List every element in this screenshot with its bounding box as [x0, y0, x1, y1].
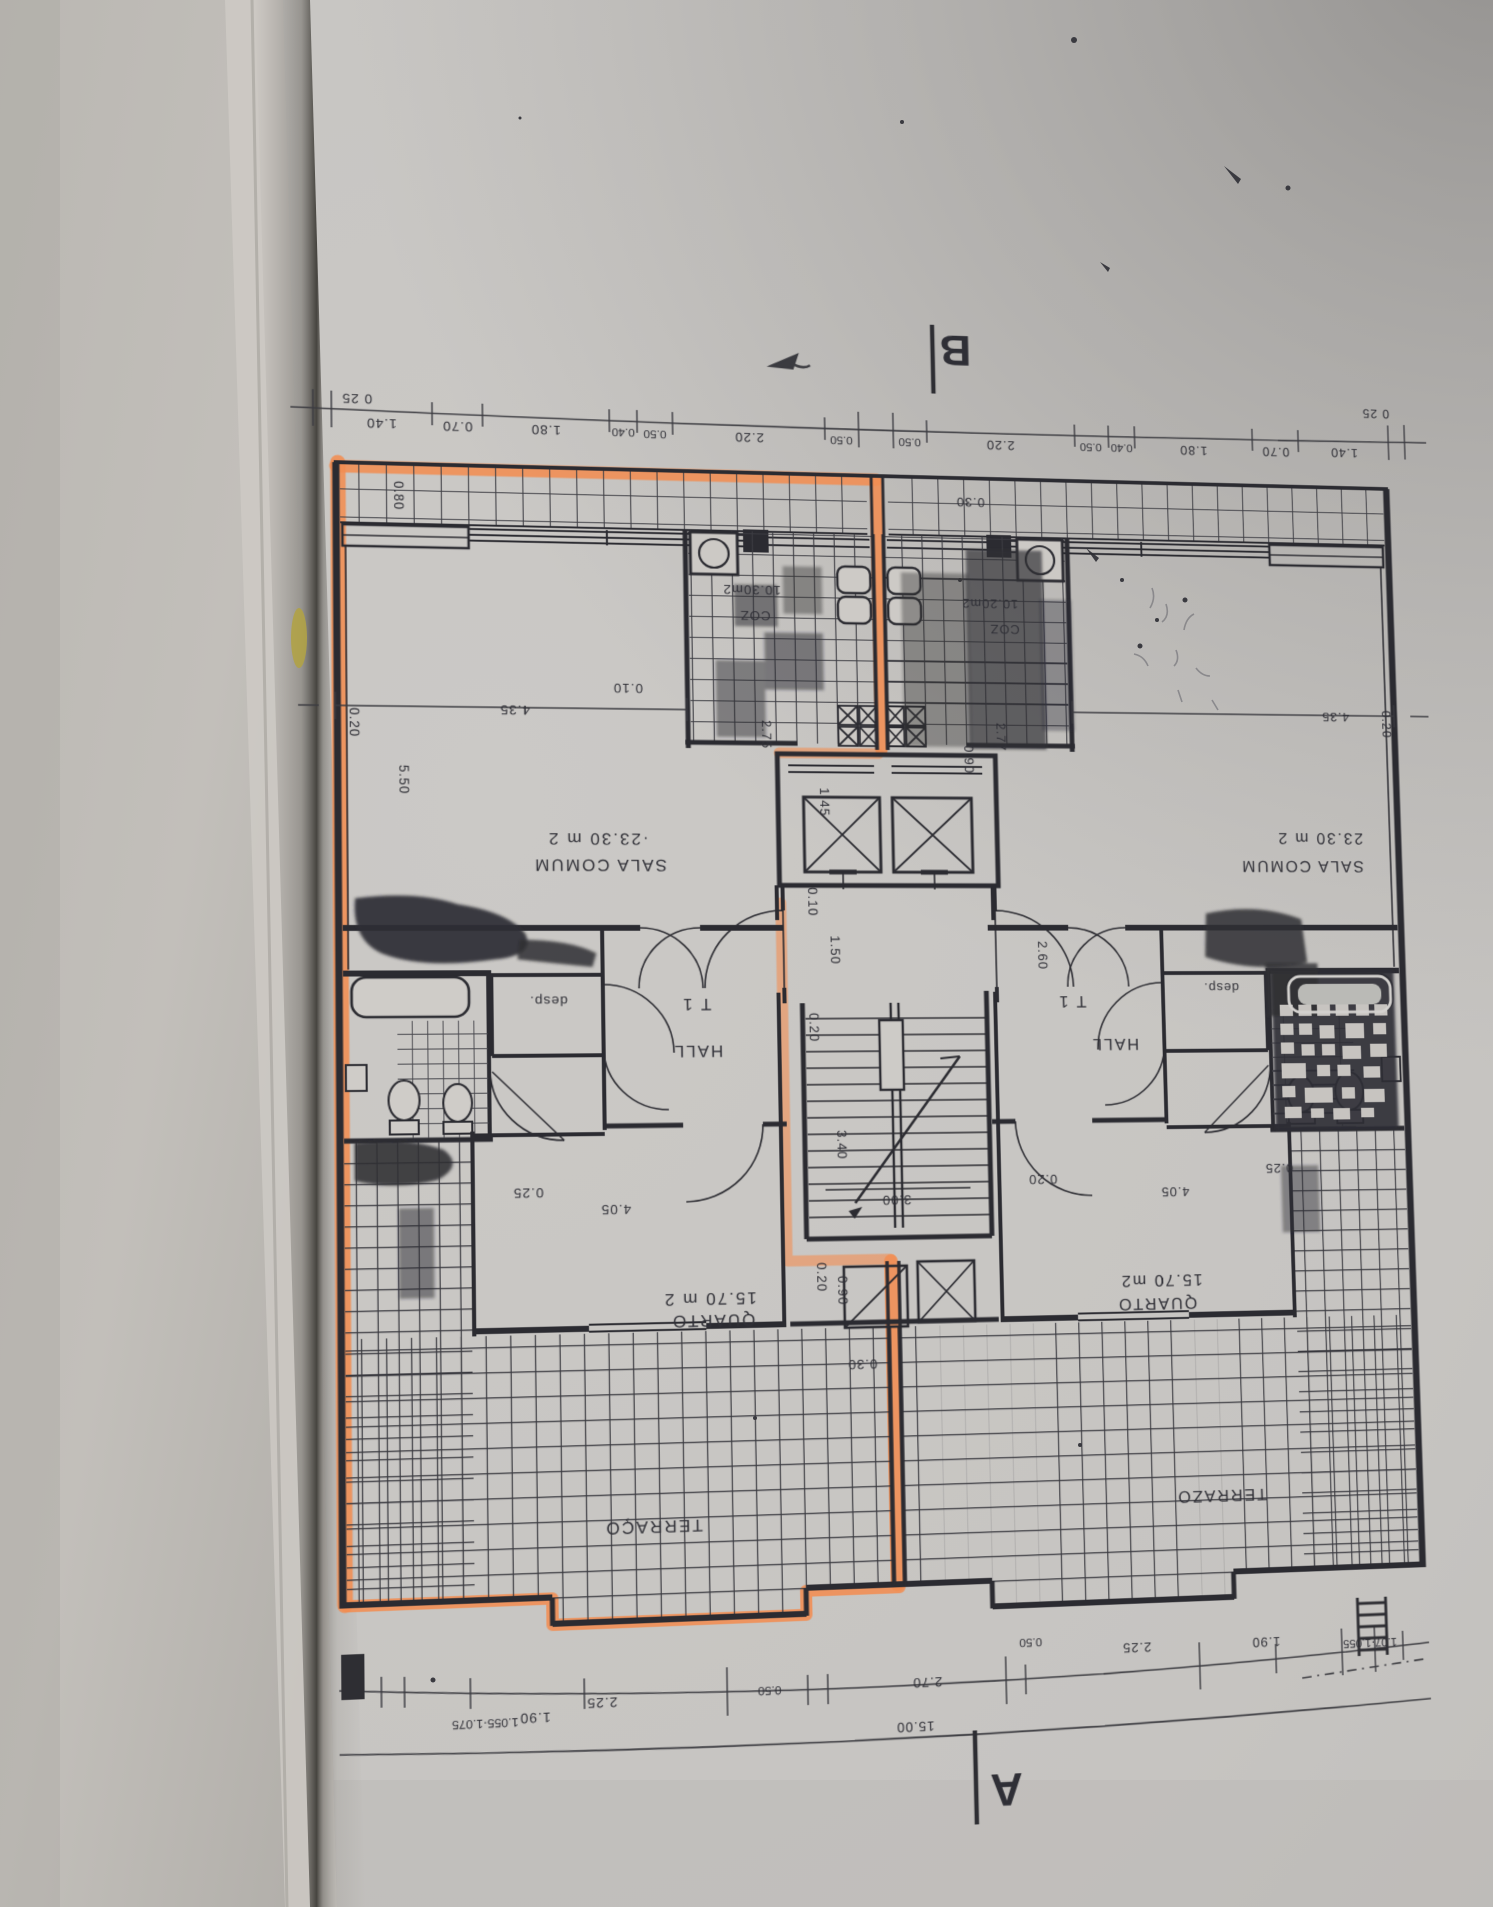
svg-text:1.80: 1.80 [1179, 443, 1207, 458]
svg-text:0.30: 0.30 [847, 1357, 877, 1373]
svg-text:0.20: 0.20 [1379, 711, 1394, 739]
svg-text:0.90: 0.90 [835, 1276, 850, 1306]
svg-text:0.80: 0.80 [391, 481, 406, 511]
svg-text:2.77: 2.77 [994, 723, 1009, 752]
svg-text:0.50: 0.50 [643, 427, 667, 441]
svg-text:3.00: 3.00 [882, 1192, 912, 1207]
svg-text:desp.: desp. [529, 994, 568, 1009]
svg-text:B: B [939, 326, 972, 375]
svg-text:2.75: 2.75 [759, 720, 774, 749]
svg-text:4.35: 4.35 [1321, 710, 1349, 724]
svg-text:15.70 m 2: 15.70 m 2 [663, 1288, 757, 1309]
svg-text:23.30 m 2: 23.30 m 2 [1276, 829, 1363, 847]
svg-text:COZ: COZ [989, 622, 1019, 637]
svg-text:0.70: 0.70 [442, 419, 473, 434]
svg-text:0.20: 0.20 [806, 1013, 821, 1042]
svg-text:3.40: 3.40 [834, 1130, 849, 1160]
svg-text:·23.30 m 2: ·23.30 m 2 [547, 829, 649, 848]
svg-text:T 1: T 1 [681, 995, 711, 1014]
svg-text:10.20m2: 10.20m2 [961, 596, 1018, 611]
svg-text:HALL: HALL [673, 1042, 724, 1061]
svg-text:COZ: COZ [740, 608, 771, 623]
svg-text:0.10: 0.10 [805, 887, 820, 916]
svg-text:0.10: 0.10 [613, 681, 643, 696]
svg-text:1.90: 1.90 [1251, 1634, 1280, 1650]
svg-text:0.50: 0.50 [757, 1683, 781, 1698]
svg-text:0.30: 0.30 [956, 495, 985, 510]
svg-text:4.05: 4.05 [600, 1202, 631, 1217]
svg-text:TERRAZO: TERRAZO [1176, 1485, 1267, 1506]
svg-text:TERRAÇO: TERRAÇO [604, 1515, 703, 1537]
svg-text:5.50: 5.50 [396, 765, 412, 795]
svg-text:0 25: 0 25 [341, 391, 372, 406]
svg-text:0.70: 0.70 [1261, 445, 1289, 459]
svg-text:0.20: 0.20 [347, 707, 363, 737]
svg-text:0.25: 0.25 [1265, 1161, 1294, 1176]
svg-text:2.20: 2.20 [734, 430, 764, 445]
svg-text:4.05: 4.05 [1161, 1184, 1190, 1199]
svg-text:desp.: desp. [1203, 980, 1239, 994]
svg-text:QUARTO: QUARTO [1117, 1294, 1198, 1314]
svg-text:0.50: 0.50 [898, 435, 921, 449]
svg-text:T 1: T 1 [1057, 992, 1086, 1010]
svg-text:1.80: 1.80 [531, 422, 561, 437]
svg-text:1.40: 1.40 [366, 416, 397, 431]
svg-text:15.70 m2: 15.70 m2 [1120, 1270, 1203, 1290]
svg-text:0.50: 0.50 [1079, 440, 1102, 454]
svg-text:2.25: 2.25 [1122, 1639, 1152, 1655]
svg-text:SALA COMUM: SALA COMUM [533, 856, 667, 875]
svg-text:SALA COMUM: SALA COMUM [1240, 857, 1364, 875]
svg-text:QUARTO: QUARTO [671, 1310, 756, 1331]
svg-text:1.055·1.075: 1.055·1.075 [452, 1715, 519, 1732]
svg-text:0.50: 0.50 [830, 433, 853, 447]
svg-text:2.20: 2.20 [986, 438, 1015, 453]
svg-text:A: A [990, 1763, 1024, 1817]
svg-text:0.50: 0.50 [1019, 1635, 1042, 1650]
svg-text:1.45: 1.45 [817, 788, 832, 817]
svg-text:0.25: 0.25 [513, 1185, 544, 1200]
svg-text:2.70: 2.70 [912, 1674, 942, 1690]
svg-text:2.25: 2.25 [586, 1694, 617, 1711]
svg-text:10.30m2: 10.30m2 [722, 582, 781, 597]
svg-text:0.90: 0.90 [961, 745, 976, 774]
svg-text:0.40: 0.40 [1110, 441, 1132, 455]
svg-text:0.20: 0.20 [1028, 1172, 1057, 1187]
svg-text:4.35: 4.35 [499, 702, 530, 717]
svg-text:1.90: 1.90 [519, 1709, 550, 1726]
svg-text:15.00: 15.00 [896, 1718, 935, 1735]
svg-text:1.50: 1.50 [828, 935, 843, 964]
svg-text:1.40: 1.40 [1330, 446, 1358, 460]
svg-text:0 25: 0 25 [1362, 407, 1390, 421]
svg-text:0.40: 0.40 [611, 425, 635, 439]
svg-text:0.20: 0.20 [814, 1262, 829, 1292]
svg-text:2.60: 2.60 [1035, 941, 1050, 970]
svg-text:HALL: HALL [1091, 1035, 1140, 1053]
